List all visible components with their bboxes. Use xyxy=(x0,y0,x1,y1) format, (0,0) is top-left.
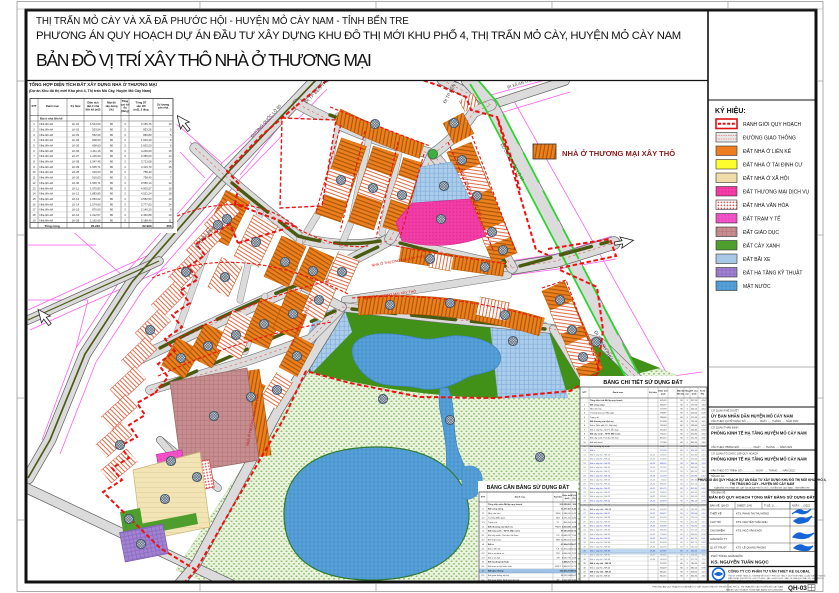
svg-text:Đất ở xây thô - NH.27: Đất ở xây thô - NH.27 xyxy=(590,512,611,515)
svg-text:LK-03: LK-03 xyxy=(72,133,80,137)
svg-text:Đất ở xây thô - NOTT, hỗn hợp: Đất ở xây thô - NOTT, hỗn hợp xyxy=(590,428,619,431)
svg-text:169,90: 169,90 xyxy=(691,513,698,515)
svg-text:LK-26: LK-26 xyxy=(72,176,80,180)
svg-text:111,40: 111,40 xyxy=(691,417,698,419)
svg-text:đa: đa xyxy=(123,106,127,110)
svg-text:935,80: 935,80 xyxy=(691,454,698,456)
svg-text:80: 80 xyxy=(110,138,113,142)
svg-text:682,00: 682,00 xyxy=(691,567,698,569)
svg-text:Đất ở xây thô - NH.33: Đất ở xây thô - NH.33 xyxy=(590,537,611,540)
svg-text:LK-31: LK-31 xyxy=(650,530,656,532)
svg-text:3.356,00: 3.356,00 xyxy=(141,154,152,158)
svg-text:80: 80 xyxy=(110,186,113,190)
svg-text:13: 13 xyxy=(33,186,36,190)
svg-text:LK-14: LK-14 xyxy=(72,202,80,206)
svg-text:11.883,00: 11.883,00 xyxy=(561,540,571,542)
svg-text:KS. NGUYỄN TUẤN NGỌC: KS. NGUYỄN TUẤN NGỌC xyxy=(711,559,769,565)
svg-text:LK-11: LK-11 xyxy=(72,186,79,190)
svg-text:735,00: 735,00 xyxy=(691,517,698,519)
svg-text:LK-13: LK-13 xyxy=(650,454,656,456)
svg-text:Đất ở xây thô - NH.29: Đất ở xây thô - NH.29 xyxy=(590,520,611,523)
svg-text:LK-07: LK-07 xyxy=(72,154,80,158)
svg-text:Nhà liền kề: Nhà liền kề xyxy=(40,192,54,196)
svg-text:CX: CX xyxy=(556,535,560,537)
svg-text:963,34: 963,34 xyxy=(660,559,667,561)
svg-text:699,90: 699,90 xyxy=(691,442,698,444)
svg-text:LK-33: LK-33 xyxy=(650,538,656,540)
svg-text:83,12: 83,12 xyxy=(661,480,667,482)
svg-text:184,10: 184,10 xyxy=(691,500,698,502)
svg-text:ĐẤT NHÀ VĂN HÓA: ĐẤT NHÀ VĂN HÓA xyxy=(743,202,789,209)
svg-text:Nhà liền kề: Nhà liền kề xyxy=(40,160,54,164)
svg-text:767,31: 767,31 xyxy=(660,467,667,469)
svg-text:(%): (%) xyxy=(701,394,705,396)
svg-text:870,60: 870,60 xyxy=(92,208,101,212)
svg-text:645,89: 645,89 xyxy=(660,525,667,527)
svg-text:Đất ở xây thô - NH.16: Đất ở xây thô - NH.16 xyxy=(590,466,611,469)
svg-text:3.713,08: 3.713,08 xyxy=(141,160,152,164)
svg-text:177,10: 177,10 xyxy=(691,530,698,532)
svg-text:146,80: 146,80 xyxy=(691,429,698,431)
svg-text:LK-35: LK-35 xyxy=(650,546,656,548)
svg-text:80: 80 xyxy=(110,133,113,137)
svg-text:LK-15: LK-15 xyxy=(650,463,656,465)
svg-text:1.286,00: 1.286,00 xyxy=(562,513,571,515)
svg-text:Mật độ: Mật độ xyxy=(107,101,116,105)
svg-text:735,10: 735,10 xyxy=(691,421,698,423)
svg-text:80: 80 xyxy=(110,192,113,196)
svg-text:15.680,29: 15.680,29 xyxy=(561,535,572,537)
svg-text:Đất trạm xử lý nước thải: Đất trạm xử lý nước thải xyxy=(488,565,512,568)
svg-text:CÔNG TY CỔ PHẦN TƯ VẤN THIẾT K: CÔNG TY CỔ PHẦN TƯ VẤN THIẾT KẾ GLOBAL xyxy=(728,569,811,574)
svg-text:BẢN ĐỒ QUY HOẠCH TỔNG MẶT BẰNG: BẢN ĐỒ QUY HOẠCH TỔNG MẶT BẰNG SỬ DỤNG Đ… xyxy=(709,495,815,500)
svg-text:80: 80 xyxy=(110,160,113,164)
svg-text:BẢNG CÂN BẰNG SỬ DỤNG ĐẤT: BẢNG CÂN BẰNG SỬ DỤNG ĐẤT xyxy=(487,483,571,491)
svg-text:ĐẤT TRẠM Y TẾ: ĐẤT TRẠM Y TẾ xyxy=(743,216,781,223)
svg-text:Nhà liền kề: Nhà liền kề xyxy=(40,133,54,137)
svg-text:Số lượng: Số lượng xyxy=(157,102,169,106)
svg-text:DT sàn: DT sàn xyxy=(690,391,698,393)
svg-text:346,10: 346,10 xyxy=(691,463,698,465)
svg-text:LK-29: LK-29 xyxy=(650,521,656,523)
svg-text:THỊ TRẤN MỎ CÀY - HUYỆN MỎ CÀY: THỊ TRẤN MỎ CÀY - HUYỆN MỎ CÀY NAM xyxy=(730,481,795,486)
svg-text:516,03: 516,03 xyxy=(92,170,101,174)
svg-text:Đất cây xanh, Thể dục thể thao: Đất cây xanh, Thể dục thể thao xyxy=(590,437,620,440)
svg-text:(m2): (m2) xyxy=(661,394,666,396)
svg-text:853,26: 853,26 xyxy=(143,127,152,131)
svg-text:553,54: 553,54 xyxy=(92,127,101,131)
svg-text:898,91: 898,91 xyxy=(660,463,667,465)
svg-text:416,75: 416,75 xyxy=(660,488,667,490)
svg-text:Danh mục: Danh mục xyxy=(613,392,624,394)
svg-text:455,20: 455,20 xyxy=(660,509,667,511)
svg-text:1.012,67: 1.012,67 xyxy=(90,213,101,217)
svg-text:294,77: 294,77 xyxy=(660,446,667,448)
svg-text:1.075,83: 1.075,83 xyxy=(90,186,101,190)
svg-text:LK-12: LK-12 xyxy=(72,192,80,196)
svg-text:ỦY BAN NHÂN DÂN HUYỆN MỎ CÀY N: ỦY BAN NHÂN DÂN HUYỆN MỎ CÀY NAM xyxy=(711,414,794,419)
svg-text:LK-19: LK-19 xyxy=(650,480,656,482)
svg-text:80: 80 xyxy=(110,202,113,206)
svg-text:555,40: 555,40 xyxy=(691,459,698,461)
svg-text:607,20: 607,20 xyxy=(691,538,698,540)
svg-text:Đất mặt nước: Đất mặt nước xyxy=(590,441,603,444)
svg-text:Nhà liền kề: Nhà liền kề xyxy=(40,213,54,217)
svg-text:204,20: 204,20 xyxy=(691,408,698,410)
svg-text:Đất cây xanh - TDTT, Mặt nước: Đất cây xanh - TDTT, Mặt nước xyxy=(488,530,521,533)
svg-text:Tổng diện tích đất lập quy hoạ: Tổng diện tích đất lập quy hoạch xyxy=(590,399,623,402)
svg-text:1.162,60: 1.162,60 xyxy=(90,218,101,222)
svg-text:LK-25: LK-25 xyxy=(72,170,80,174)
svg-text:Nhà liền kề: Nhà liền kề xyxy=(40,127,54,131)
svg-text:1.053,22: 1.053,22 xyxy=(90,197,101,201)
svg-text:LK-17: LK-17 xyxy=(650,471,656,473)
svg-text:LK-06: LK-06 xyxy=(72,149,80,153)
svg-text:Danh mục: Danh mục xyxy=(46,104,59,108)
svg-text:LK-02: LK-02 xyxy=(72,127,80,131)
svg-text:Đất ở xây thô - NH.36: Đất ở xây thô - NH.36 xyxy=(590,550,611,553)
svg-text:102.412,70: 102.412,70 xyxy=(560,570,572,573)
svg-text:KÝ HIỆU:: KÝ HIỆU: xyxy=(715,106,746,115)
svg-text:198,60: 198,60 xyxy=(691,425,698,427)
svg-text:145,00: 145,00 xyxy=(691,413,698,415)
svg-text:(%): (%) xyxy=(109,107,113,111)
svg-text:Trạm y tế: Trạm y tế xyxy=(488,521,498,524)
svg-text:266: 266 xyxy=(166,224,171,228)
svg-text:Đất ở xây thô - NH.42: Đất ở xây thô - NH.42 xyxy=(590,575,611,578)
svg-text:252,80: 252,80 xyxy=(691,434,698,436)
svg-text:ĐẤT NHÀ Ở XÃ HỘI: ĐẤT NHÀ Ở XÃ HỘI xyxy=(743,175,789,182)
svg-text:LK-28: LK-28 xyxy=(72,218,80,222)
svg-text:10: 10 xyxy=(169,186,172,190)
svg-text:988,80: 988,80 xyxy=(691,534,698,536)
svg-text:QL KT TRUST: QL KT TRUST xyxy=(710,546,727,550)
svg-text:803,17: 803,17 xyxy=(660,513,667,515)
svg-text:PHÒNG KINH TẾ HẠ TẦNG HUYỆN MỎ: PHÒNG KINH TẾ HẠ TẦNG HUYỆN MỎ CÀY NAM xyxy=(711,457,807,462)
svg-text:310.359,00: 310.359,00 xyxy=(560,504,572,506)
svg-text:XH: XH xyxy=(556,557,559,559)
svg-text:Đất ở xây thô - NH.41: Đất ở xây thô - NH.41 xyxy=(590,570,612,573)
svg-text:13: 13 xyxy=(169,122,172,126)
svg-text:608,60: 608,60 xyxy=(92,143,101,147)
svg-text:3.150,76: 3.150,76 xyxy=(141,122,152,126)
svg-text:552,60: 552,60 xyxy=(92,133,101,137)
svg-text:(Dự án Khu đô thị mới Khu phố: (Dự án Khu đô thị mới Khu phố 4, Thị trấ… xyxy=(29,89,152,93)
svg-text:1.883,85: 1.883,85 xyxy=(90,192,101,196)
svg-text:297,10: 297,10 xyxy=(691,400,698,402)
svg-text:ĐƯỜNG GIAO THÔNG: ĐƯỜNG GIAO THÔNG xyxy=(743,135,796,142)
svg-text:11.277,50: 11.277,50 xyxy=(561,509,571,511)
svg-text:Đất cây xanh, Thể dục thể thao: Đất cây xanh, Thể dục thể thao xyxy=(488,534,519,537)
svg-text:4.249,60: 4.249,60 xyxy=(141,149,152,153)
svg-text:13,16: 13,16 xyxy=(571,531,577,533)
svg-text:463,98: 463,98 xyxy=(660,542,667,544)
svg-text:sàn XD: sàn XD xyxy=(136,104,145,108)
svg-text:LK-15: LK-15 xyxy=(72,208,80,212)
svg-text:Đất công cộng: Đất công cộng xyxy=(590,403,605,406)
svg-text:5.188,40: 5.188,40 xyxy=(141,218,152,222)
svg-text:Đất ở: Đất ở xyxy=(590,449,596,452)
svg-text:6.037,78: 6.037,78 xyxy=(562,557,571,559)
svg-text:Đất ở xây thô - NH.40: Đất ở xây thô - NH.40 xyxy=(590,566,611,569)
svg-text:1.506,71: 1.506,71 xyxy=(90,181,101,185)
svg-text:740,90: 740,90 xyxy=(691,525,698,527)
svg-text:Tỷ lệ: Tỷ lệ xyxy=(700,390,706,393)
svg-text:4.552,53: 4.552,53 xyxy=(141,197,152,201)
svg-text:cao: cao xyxy=(685,394,689,396)
svg-text:4.903,57: 4.903,57 xyxy=(141,186,152,190)
svg-text:18: 18 xyxy=(169,192,172,196)
svg-text:1.484,12: 1.484,12 xyxy=(562,566,571,568)
svg-text:Đất thương mại dịch vụ: Đất thương mại dịch vụ xyxy=(488,525,513,528)
svg-text:LK-23: LK-23 xyxy=(650,496,656,498)
svg-text:660,10: 660,10 xyxy=(691,471,698,473)
svg-text:xây dựng: xây dựng xyxy=(105,104,117,108)
svg-text:Đất ở xây thô - NH.30: Đất ở xây thô - NH.30 xyxy=(590,524,611,527)
svg-text:863,70: 863,70 xyxy=(691,542,698,544)
svg-text:762,52: 762,52 xyxy=(660,563,667,565)
svg-text:Đất giao thông nội bộ: Đất giao thông nội bộ xyxy=(488,574,510,577)
svg-text:62.990: 62.990 xyxy=(142,224,152,228)
svg-text:858,19: 858,19 xyxy=(660,404,667,406)
svg-text:SHEET: 1/40: SHEET: 1/40 xyxy=(737,504,752,508)
svg-text:598,99: 598,99 xyxy=(660,492,667,494)
svg-text:4.521,24: 4.521,24 xyxy=(141,192,152,196)
svg-text:918,62: 918,62 xyxy=(660,555,667,557)
svg-text:Đất mặt nước: Đất mặt nước xyxy=(488,539,502,542)
svg-text:Nhà liền kề: Nhà liền kề xyxy=(40,165,54,169)
svg-text:Nhà liền kề: Nhà liền kề xyxy=(40,138,54,142)
svg-text:162,60: 162,60 xyxy=(691,546,698,548)
svg-text:921,10: 921,10 xyxy=(691,484,698,486)
svg-text:1.415,60: 1.415,60 xyxy=(90,154,101,158)
svg-text:LK-14: LK-14 xyxy=(650,459,656,461)
svg-text:Trường Mẫu giáo: Trường Mẫu giáo xyxy=(488,516,506,519)
svg-text:642,40: 642,40 xyxy=(691,492,698,494)
svg-text:Tổng diện tích đất lập quy hoạ: Tổng diện tích đất lập quy hoạch xyxy=(488,503,523,506)
svg-text:ĐẤT NHÀ Ở LIÊN KẾ: ĐẤT NHÀ Ở LIÊN KẾ xyxy=(743,147,792,155)
svg-text:722,93: 722,93 xyxy=(660,475,667,477)
svg-text:126,30: 126,30 xyxy=(691,446,698,448)
svg-text:Tổng DT: Tổng DT xyxy=(136,101,147,105)
svg-text:STT: STT xyxy=(481,497,486,499)
svg-text:PHƯƠNG ÁN QUY HOẠCH DỰ ÁN ĐẦU: PHƯƠNG ÁN QUY HOẠCH DỰ ÁN ĐẦU TƯ XÂY DỰN… xyxy=(652,586,783,589)
svg-text:Nhà liền kề: Nhà liền kề xyxy=(40,197,54,201)
svg-text:Đất ở xây thô - NH.23: Đất ở xây thô - NH.23 xyxy=(590,495,611,498)
svg-text:29,67: 29,67 xyxy=(571,544,577,546)
svg-text:ĐẤT BÃI XE: ĐẤT BÃI XE xyxy=(743,256,771,263)
svg-text:610,15: 610,15 xyxy=(660,576,667,578)
svg-text:80: 80 xyxy=(110,181,113,185)
svg-text:Nhà liền kề: Nhà liền kề xyxy=(40,170,54,174)
svg-text:Trường đào tạo, Mẫu giáo: Trường đào tạo, Mẫu giáo xyxy=(590,412,615,415)
svg-text:758,40: 758,40 xyxy=(143,170,152,174)
svg-text:2.140,10: 2.140,10 xyxy=(141,208,152,212)
svg-text:14: 14 xyxy=(169,202,172,206)
svg-text:ĐẤT CÂY XANH: ĐẤT CÂY XANH xyxy=(743,243,780,250)
svg-text:3.777,60: 3.777,60 xyxy=(141,202,152,206)
svg-text:772,48: 772,48 xyxy=(660,442,667,444)
svg-text:4.640,34: 4.640,34 xyxy=(562,553,571,555)
svg-text:320,44: 320,44 xyxy=(660,425,667,427)
svg-text:LK-09: LK-09 xyxy=(72,165,80,169)
svg-text:80: 80 xyxy=(110,176,113,180)
svg-text:Đất ở xây thô - NH.26: Đất ở xây thô - NH.26 xyxy=(590,508,612,511)
svg-text:768,87: 768,87 xyxy=(660,413,667,415)
svg-text:26.240: 26.240 xyxy=(91,224,101,228)
svg-text:LK-08: LK-08 xyxy=(72,160,80,164)
svg-text:780,10: 780,10 xyxy=(691,563,698,565)
svg-text:LK-24: LK-24 xyxy=(650,500,656,502)
svg-text:LK-20: LK-20 xyxy=(650,484,656,486)
svg-text:(m2): (m2) xyxy=(692,394,697,396)
svg-text:Nhà liền kề: Nhà liền kề xyxy=(40,154,54,158)
svg-text:Đất thương mại dịch vụ: Đất thương mại dịch vụ xyxy=(590,420,614,423)
svg-text:16: 16 xyxy=(169,149,172,153)
svg-text:Nhà liền kề: Nhà liền kề xyxy=(40,143,54,147)
svg-text:11: 11 xyxy=(33,176,36,180)
svg-text:80: 80 xyxy=(110,165,113,169)
svg-text:TMDV: TMDV xyxy=(555,526,562,528)
svg-text:Trạm y tế: Trạm y tế xyxy=(590,416,600,419)
svg-text:860,00: 860,00 xyxy=(564,522,571,524)
svg-text:17: 17 xyxy=(33,208,36,212)
svg-text:16: 16 xyxy=(169,165,172,169)
svg-text:2.430,89: 2.430,89 xyxy=(141,213,152,217)
svg-text:Đất hạ tầng kỹ thuật: Đất hạ tầng kỹ thuật xyxy=(488,561,509,564)
svg-text:416,23: 416,23 xyxy=(660,538,667,540)
svg-text:676,00: 676,00 xyxy=(660,517,667,519)
svg-text:758,40: 758,40 xyxy=(143,176,152,180)
svg-text:80: 80 xyxy=(110,122,113,126)
svg-text:985,80: 985,80 xyxy=(691,467,698,469)
svg-text:881,41: 881,41 xyxy=(660,571,667,573)
svg-text:ĐẤT GIÁO DỤC: ĐẤT GIÁO DỤC xyxy=(743,229,779,236)
svg-text:Đất ở xây thô - NH.20: Đất ở xây thô - NH.20 xyxy=(590,483,611,486)
svg-text:45,62: 45,62 xyxy=(571,575,577,577)
svg-text:NGÀY: ..../2022: NGÀY: ..../2022 xyxy=(792,504,811,508)
svg-text:PHƯƠNG ÁN QUY HOẠCH DỰ ÁN ĐẦU: PHƯƠNG ÁN QUY HOẠCH DỰ ÁN ĐẦU TƯ XÂY DỰN… xyxy=(36,28,681,42)
svg-text:344,50: 344,50 xyxy=(691,496,698,498)
svg-text:Đất ở xây thô - NH.38: Đất ở xây thô - NH.38 xyxy=(590,558,611,561)
svg-text:Tổng cộng: Tổng cộng xyxy=(44,224,59,228)
svg-text:80: 80 xyxy=(110,154,113,158)
svg-text:Đất hạ tầng kỹ thuật: Đất hạ tầng kỹ thuật xyxy=(590,445,610,448)
svg-text:896,81: 896,81 xyxy=(660,484,667,486)
svg-text:(m2): (m2) xyxy=(565,498,570,500)
svg-text:19: 19 xyxy=(33,218,36,222)
svg-text:BẢNG CHI TIẾT SỬ DỤNG ĐẤT: BẢNG CHI TIẾT SỬ DỤNG ĐẤT xyxy=(603,379,683,386)
svg-text:Đất ở xây thô - NH.22: Đất ở xây thô - NH.22 xyxy=(590,491,611,494)
svg-text:TDC: TDC xyxy=(556,553,561,555)
svg-text:NVH: NVH xyxy=(556,513,561,515)
svg-text:1.484,12: 1.484,12 xyxy=(562,561,571,564)
svg-text:561,42: 561,42 xyxy=(660,429,667,431)
svg-text:194,07: 194,07 xyxy=(660,454,667,456)
svg-text:(%): (%) xyxy=(572,498,576,500)
svg-text:Nhà văn hóa: Nhà văn hóa xyxy=(488,512,501,515)
svg-text:LK-26: LK-26 xyxy=(650,509,656,511)
svg-text:753,30: 753,30 xyxy=(660,459,667,461)
svg-text:179,55: 179,55 xyxy=(660,450,667,452)
svg-text:LK-22: LK-22 xyxy=(650,492,656,494)
svg-text:Ký hiệu: Ký hiệu xyxy=(71,104,81,108)
svg-text:Đất ở xây thô - NH.31: Đất ở xây thô - NH.31 xyxy=(590,529,611,532)
svg-text:14: 14 xyxy=(169,154,172,158)
svg-text:80: 80 xyxy=(110,170,113,174)
svg-text:10: 10 xyxy=(169,213,172,217)
svg-text:80: 80 xyxy=(110,143,113,147)
svg-text:Đất ở xã hội: Đất ở xã hội xyxy=(488,556,500,559)
svg-text:1.514,60: 1.514,60 xyxy=(90,122,101,126)
svg-text:831,57: 831,57 xyxy=(660,438,667,440)
svg-text:Đất ở xây thô - NH.37: Đất ở xây thô - NH.37 xyxy=(590,554,611,557)
svg-text:THỊ TRẤN MỎ CÀY VÀ XÃ ĐÃ PHƯỚC: THỊ TRẤN MỎ CÀY VÀ XÃ ĐÃ PHƯỚC HỘI - HUY… xyxy=(36,15,409,27)
svg-text:STT: STT xyxy=(31,104,36,108)
svg-text:XD (%): XD (%) xyxy=(677,394,684,396)
svg-text:Đất ở tái định cư: Đất ở tái định cư xyxy=(488,552,505,555)
svg-text:PHÓ TỔNG GIÁM ĐỐC: PHÓ TỔNG GIÁM ĐỐC xyxy=(711,553,744,558)
svg-text:Đất cây xanh - TDTT, Mặt nước: Đất cây xanh - TDTT, Mặt nước xyxy=(590,433,621,436)
svg-text:Tỷ lệ: Tỷ lệ xyxy=(571,494,577,497)
svg-text:5.633,28: 5.633,28 xyxy=(562,526,571,528)
svg-text:Đất ở liền kề: Đất ở liền kề xyxy=(488,547,501,550)
svg-text:LK-30: LK-30 xyxy=(72,181,80,185)
svg-text:1.574,60: 1.574,60 xyxy=(90,202,101,206)
svg-text:1.603,20: 1.603,20 xyxy=(141,143,152,147)
svg-text:Nhà liền kề: Nhà liền kề xyxy=(40,202,54,206)
svg-text:156,40: 156,40 xyxy=(691,555,698,557)
svg-text:608,60: 608,60 xyxy=(92,138,101,142)
svg-text:516,03: 516,03 xyxy=(92,176,101,180)
svg-text:Nhà văn hóa: Nhà văn hóa xyxy=(590,407,603,410)
svg-text:LK-16: LK-16 xyxy=(72,213,80,217)
svg-text:LK-34: LK-34 xyxy=(650,542,656,544)
svg-text:10: 10 xyxy=(33,170,36,174)
svg-text:944,29: 944,29 xyxy=(660,567,667,569)
svg-text:Danh mục: Danh mục xyxy=(515,497,526,499)
svg-text:Nhà liền kề: Nhà liền kề xyxy=(40,122,54,126)
svg-text:(m2), 3 tầng: (m2), 3 tầng xyxy=(133,107,148,111)
svg-text:129,10: 129,10 xyxy=(691,404,698,406)
svg-text:LK-01: LK-01 xyxy=(72,122,80,126)
svg-text:618,50: 618,50 xyxy=(691,571,698,573)
svg-text:QH-03: QH-03 xyxy=(788,585,807,592)
svg-text:Đất ở xây thô - NH.17: Đất ở xây thô - NH.17 xyxy=(590,470,611,473)
svg-text:573,38: 573,38 xyxy=(660,421,667,423)
svg-text:Đất ở xây thô - NH.24: Đất ở xây thô - NH.24 xyxy=(590,499,611,502)
svg-text:liền kề (m2): liền kề (m2) xyxy=(86,107,101,111)
svg-text:Nhà liền kề: Nhà liền kề xyxy=(40,176,54,180)
svg-text:MN: MN xyxy=(556,540,560,542)
svg-text:MG: MG xyxy=(556,517,560,519)
svg-text:3.556,14: 3.556,14 xyxy=(141,181,152,185)
svg-text:ĐỊA ĐIỂM: THỊ TRẤN MỎ CÀY VÀ X: ĐỊA ĐIỂM: THỊ TRẤN MỎ CÀY VÀ XÃ ĐA PHƯỚC… xyxy=(714,487,810,490)
svg-text:Diện tích: Diện tích xyxy=(658,390,668,393)
svg-text:49,05: 49,05 xyxy=(571,570,577,573)
svg-text:căn nhà: căn nhà xyxy=(158,106,169,110)
svg-text:16: 16 xyxy=(33,202,36,206)
svg-text:12: 12 xyxy=(33,181,36,185)
svg-text:Đất ở: Đất ở xyxy=(488,543,494,546)
svg-text:LK-27: LK-27 xyxy=(650,513,656,515)
svg-text:812,80: 812,80 xyxy=(691,488,698,490)
svg-text:Diện tích: Diện tích xyxy=(87,101,99,105)
svg-text:286,40: 286,40 xyxy=(660,417,667,419)
svg-text:330,61: 330,61 xyxy=(660,496,667,498)
svg-text:LK-04: LK-04 xyxy=(72,138,80,142)
svg-text:Đất ở xây thô - NH.34: Đất ở xây thô - NH.34 xyxy=(590,541,611,544)
